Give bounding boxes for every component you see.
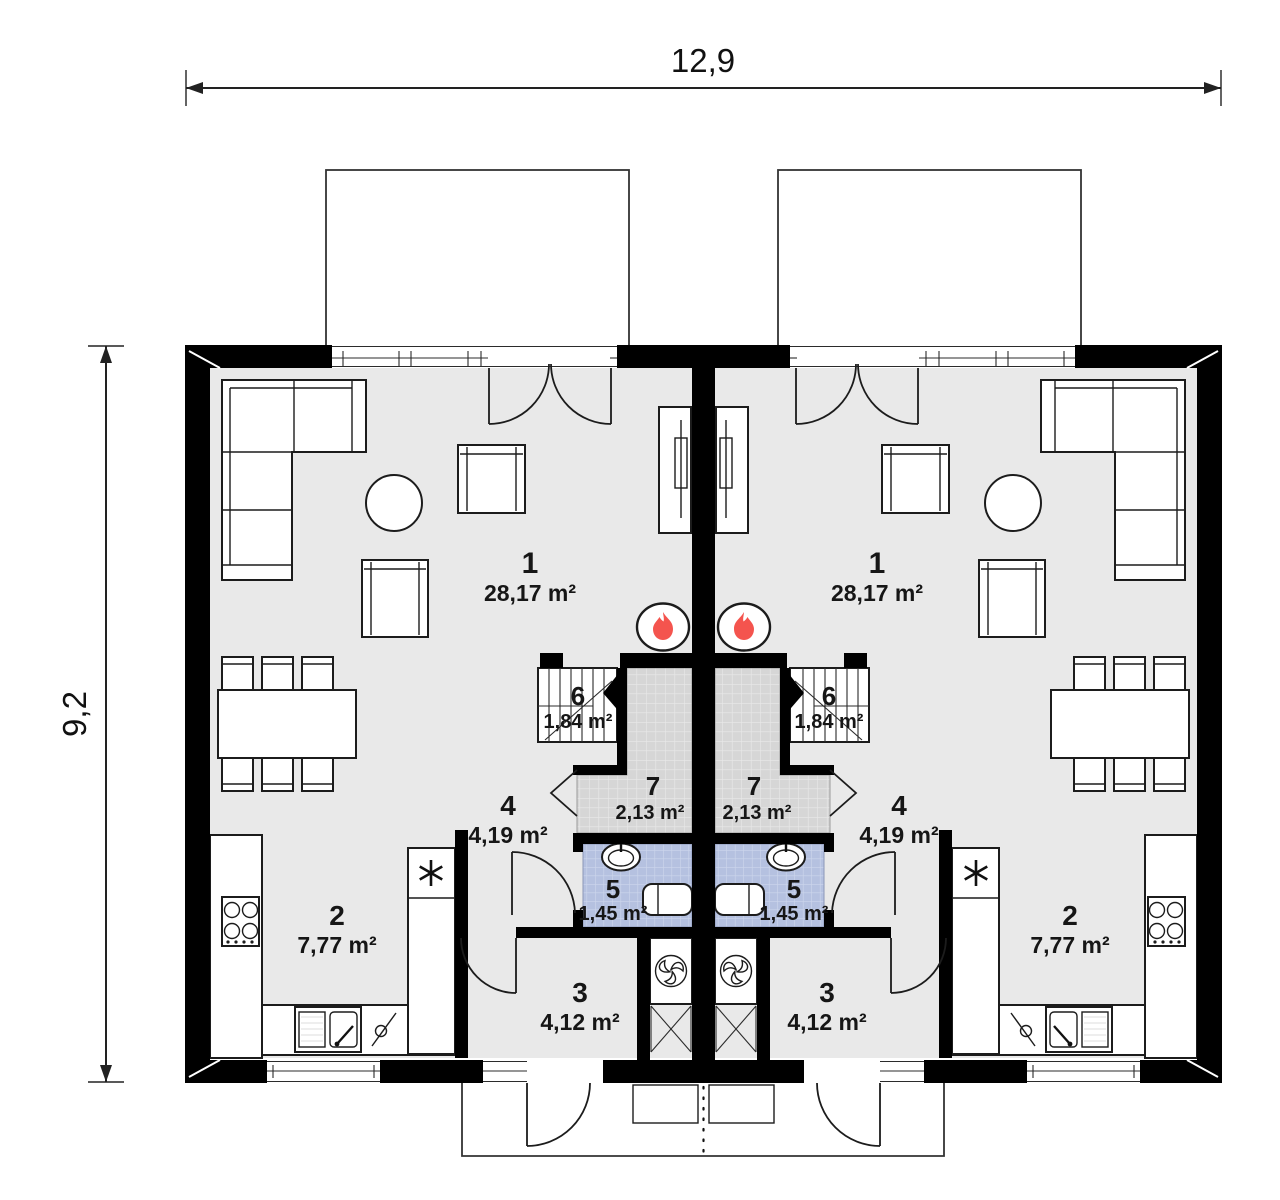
- dimension-width: 12,9: [186, 42, 1221, 106]
- room-4-left-number: 4: [500, 790, 516, 821]
- room-1-right-number: 1: [869, 547, 886, 580]
- room-7-left-number: 7: [646, 771, 660, 801]
- room-3-left-area: 4,12 m²: [540, 1009, 620, 1035]
- dimension-height: 9,2: [56, 346, 124, 1082]
- room-6-left-number: 6: [571, 681, 585, 711]
- room-1-left-area: 28,17 m²: [484, 580, 576, 606]
- room-2-left-area: 7,77 m²: [297, 932, 377, 958]
- unit-right: [704, 170, 1223, 1146]
- entrance-porch: [462, 1083, 944, 1158]
- room-1-left-number: 1: [522, 547, 539, 580]
- room-1-right-area: 28,17 m²: [831, 580, 923, 606]
- room-3-right-area: 4,12 m²: [787, 1009, 867, 1035]
- room-5-right-area: 1,45 m²: [760, 903, 829, 925]
- room-4-left-area: 4,19 m²: [468, 822, 548, 848]
- room-2-left-number: 2: [329, 900, 345, 931]
- dimension-width-label: 12,9: [671, 42, 735, 79]
- room-5-left-number: 5: [606, 874, 620, 904]
- room-7-right-area: 2,13 m²: [723, 802, 792, 824]
- room-4-right-number: 4: [891, 790, 907, 821]
- room-7-left-area: 2,13 m²: [616, 802, 685, 824]
- room-6-left-area: 1,84 m²: [544, 711, 613, 733]
- unit-left-geometry: [185, 170, 704, 1146]
- floor-plan-page: 12,9 9,2 1 28,17 m² 1 28,17 m² 2 7,77 m²…: [0, 0, 1280, 1200]
- porch-step: [709, 1085, 774, 1123]
- room-2-right-number: 2: [1062, 900, 1078, 931]
- unit-right-geometry: [704, 170, 1223, 1146]
- room-5-right-number: 5: [787, 874, 801, 904]
- floor-plan-drawing: 12,9 9,2 1 28,17 m² 1 28,17 m² 2 7,77 m²…: [0, 0, 1280, 1200]
- room-2-right-area: 7,77 m²: [1030, 932, 1110, 958]
- porch-step: [633, 1085, 698, 1123]
- room-7-right-number: 7: [747, 771, 761, 801]
- room-3-right-number: 3: [819, 977, 835, 1008]
- room-5-left-area: 1,45 m²: [579, 903, 648, 925]
- room-6-right-number: 6: [822, 681, 836, 711]
- room-4-right-area: 4,19 m²: [859, 822, 939, 848]
- room-3-left-number: 3: [572, 977, 588, 1008]
- room-6-right-area: 1,84 m²: [795, 711, 864, 733]
- dimension-height-label: 9,2: [56, 691, 93, 737]
